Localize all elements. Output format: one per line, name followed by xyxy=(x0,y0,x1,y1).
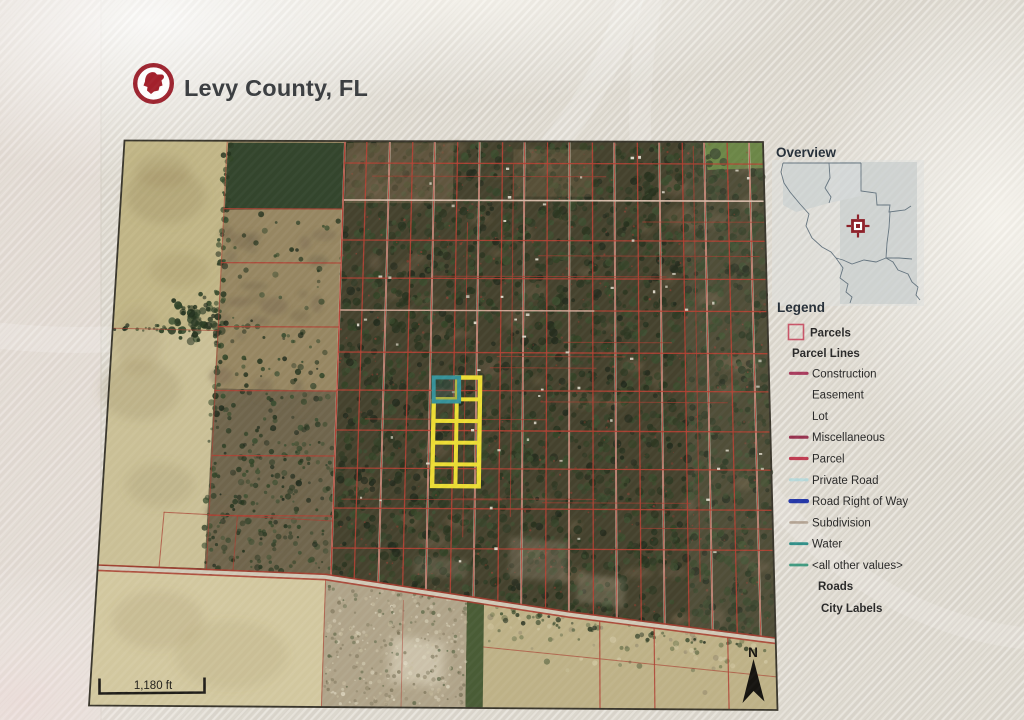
svg-text:Roads: Roads xyxy=(818,581,853,593)
svg-text:Road Right of Way: Road Right of Way xyxy=(812,496,908,508)
svg-text:Parcel: Parcel xyxy=(812,454,845,466)
svg-text:Subdivision: Subdivision xyxy=(812,517,871,529)
svg-text:Water: Water xyxy=(812,539,842,551)
svg-text:Levy County, FL: Levy County, FL xyxy=(184,75,368,101)
svg-text:Parcel Lines: Parcel Lines xyxy=(792,348,860,360)
svg-text:<all other values>: <all other values> xyxy=(812,560,903,572)
svg-text:Overview: Overview xyxy=(776,145,837,160)
svg-text:Lot: Lot xyxy=(812,411,829,423)
svg-text:Construction: Construction xyxy=(812,368,877,380)
svg-text:1,180 ft: 1,180 ft xyxy=(134,680,173,692)
svg-text:City Labels: City Labels xyxy=(821,603,882,615)
svg-text:Easement: Easement xyxy=(812,390,865,402)
svg-text:N: N xyxy=(748,645,758,660)
svg-text:Private Road: Private Road xyxy=(812,475,878,487)
svg-text:Legend: Legend xyxy=(777,300,825,315)
svg-text:Parcels: Parcels xyxy=(810,328,851,340)
svg-text:Miscellaneous: Miscellaneous xyxy=(812,432,885,444)
